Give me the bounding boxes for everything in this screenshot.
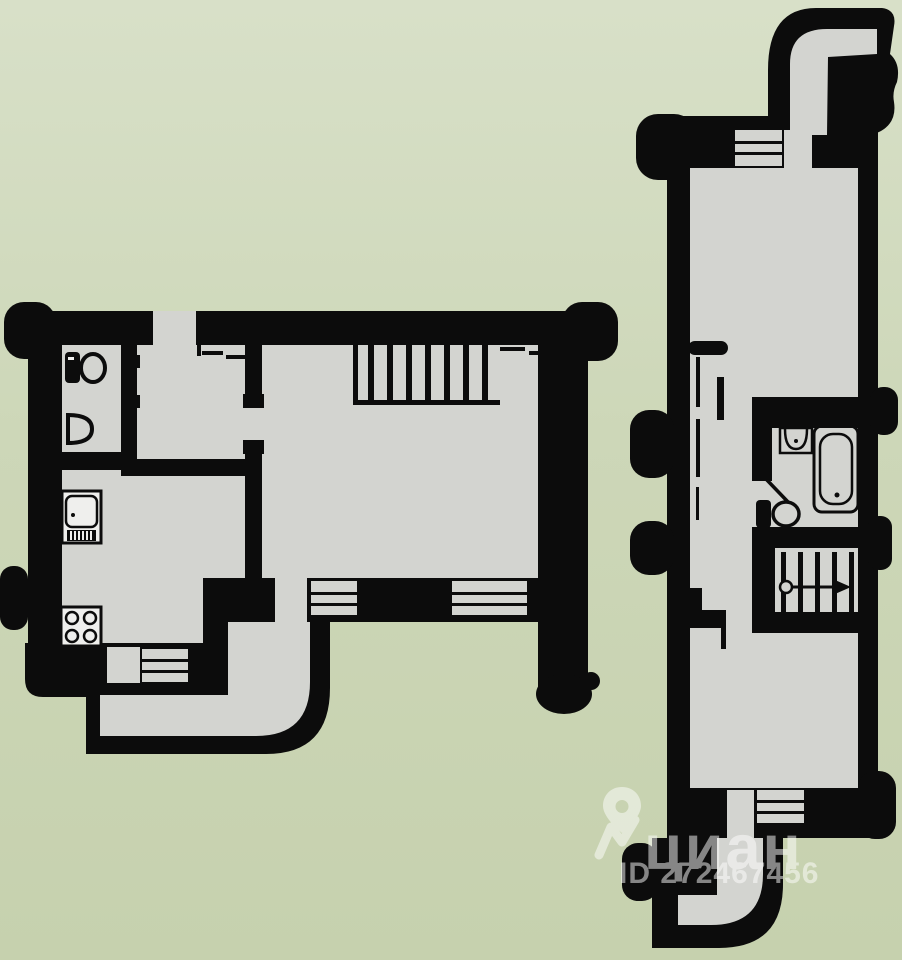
window-mullion <box>311 592 357 595</box>
window <box>735 130 782 166</box>
balcony-door-opening <box>275 578 307 623</box>
top-wall <box>20 311 592 346</box>
window-mullion <box>311 603 357 606</box>
door-swing-mark <box>226 355 248 359</box>
door-jamb <box>243 440 264 454</box>
hall-room-wall <box>245 345 262 398</box>
partition-stub <box>688 610 726 628</box>
door-jamb <box>243 394 264 408</box>
stair-riser <box>463 345 469 400</box>
kitchen-top-wall <box>121 459 262 476</box>
wall-end-cap <box>582 672 600 690</box>
watermark-id: ID 272467456 <box>619 857 820 890</box>
curved-duct-wall <box>768 8 898 136</box>
window <box>452 581 527 615</box>
window-mullion <box>735 141 782 144</box>
partition-line <box>696 419 700 477</box>
stair-riser <box>368 345 374 400</box>
toilet-icon <box>756 500 799 528</box>
wall-bump <box>870 387 898 435</box>
window <box>311 581 357 615</box>
entrance-opening <box>153 311 196 346</box>
window-mullion <box>452 603 527 606</box>
door-swing-mark <box>500 347 525 351</box>
bathroom-bottom-wall <box>752 527 858 548</box>
corridor-opening <box>784 130 812 169</box>
window-mullion <box>142 659 188 662</box>
partition-stub <box>688 341 728 355</box>
wall-bump <box>868 516 892 570</box>
kitchen-balcony-door-opening <box>107 647 140 683</box>
right-wall <box>538 311 588 692</box>
window-mullion <box>452 592 527 595</box>
stairwell-bottom-wall <box>752 612 858 633</box>
main-floor <box>690 168 858 788</box>
partition-line <box>721 628 726 649</box>
stair-riser <box>798 552 803 612</box>
window-mullion <box>142 670 188 673</box>
partition-line <box>717 377 724 420</box>
stair-riser <box>406 345 412 400</box>
bathroom-left-wall <box>752 397 772 481</box>
stair-stringer <box>353 345 358 405</box>
left-floorplan <box>0 302 618 754</box>
stair-riser <box>849 552 854 612</box>
door-jamb <box>133 395 140 408</box>
wall-end-cap <box>0 566 28 630</box>
stair-riser <box>425 345 431 400</box>
right-floorplan <box>622 8 898 948</box>
door-swing-mark <box>529 351 553 355</box>
partition-line <box>696 357 700 407</box>
stove-icon <box>61 607 101 646</box>
kitchen-side-wall <box>245 452 262 583</box>
left-wall <box>28 330 62 656</box>
wall-end-cap <box>858 771 896 839</box>
stair-riser <box>815 552 820 612</box>
stair-stringer <box>353 400 500 405</box>
kitchen-window <box>142 649 188 682</box>
door-jamb <box>133 355 140 368</box>
window-mullion <box>757 800 804 803</box>
window-mullion <box>735 152 782 155</box>
wall-bump <box>630 410 674 478</box>
stair-riser <box>387 345 393 400</box>
wall-bump <box>630 521 674 575</box>
fridge-icon <box>62 491 101 543</box>
partition-line <box>696 487 699 520</box>
stair-riser <box>444 345 450 400</box>
door-swing-mark <box>197 344 201 356</box>
door-swing-mark <box>202 351 223 355</box>
floorplan-screenshot: циан ID 272467456 <box>0 0 902 960</box>
stair-arrow-start <box>780 581 792 593</box>
stair-riser <box>482 345 488 400</box>
